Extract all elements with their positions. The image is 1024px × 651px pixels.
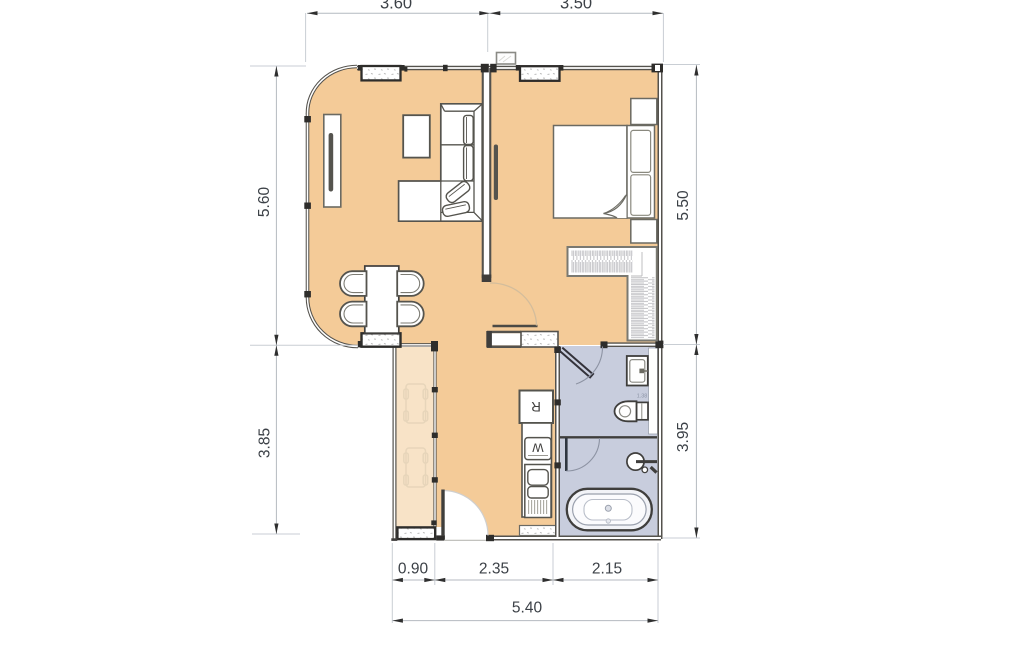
svg-text:5.40: 5.40	[512, 600, 543, 617]
svg-text:3.60: 3.60	[380, 0, 412, 13]
svg-text:5.50: 5.50	[675, 190, 692, 221]
svg-text:3.85: 3.85	[257, 428, 274, 458]
svg-text:2.35: 2.35	[479, 561, 509, 578]
svg-text:0.90: 0.90	[398, 561, 429, 578]
svg-text:1.38: 1.38	[637, 394, 648, 400]
svg-text:5.60: 5.60	[256, 187, 273, 218]
svg-text:W: W	[532, 441, 544, 455]
svg-text:3.95: 3.95	[675, 422, 692, 452]
svg-text:2.15: 2.15	[592, 561, 622, 578]
svg-text:3.50: 3.50	[560, 0, 592, 13]
svg-text:R: R	[531, 399, 541, 414]
